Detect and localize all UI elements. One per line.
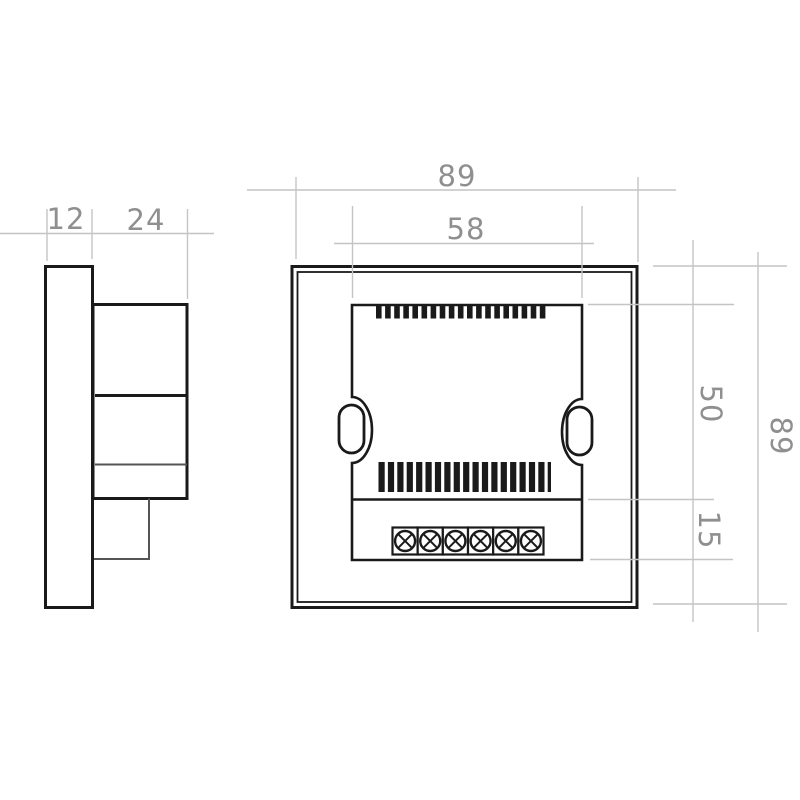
terminal-block [393, 528, 544, 555]
terminal-screw-icon [496, 531, 516, 551]
dimension-label-body-depth: 24 [127, 203, 166, 237]
dimension-label-panel-width: 58 [447, 212, 486, 246]
mounting-panel-outline [352, 305, 582, 560]
side-front-plate-outline [46, 267, 93, 608]
terminal-screw-icon [521, 531, 541, 551]
left-mounting-slot [339, 405, 364, 453]
side-body-outline [93, 305, 187, 499]
terminal-screw-icon [420, 531, 440, 551]
terminal-screw-icon [471, 531, 491, 551]
side-view [46, 267, 188, 608]
dimension-label-front-thickness: 12 [47, 202, 86, 236]
terminal-screw-icon [395, 531, 415, 551]
side-terminal-protrusion-outline [94, 499, 149, 560]
terminal-screw-icon [445, 531, 465, 551]
technical-drawing-canvas: 12 24 89 58 50 15 89 [0, 0, 800, 800]
right-mounting-slot [567, 407, 592, 455]
dimension-label-overall-height: 89 [764, 417, 798, 456]
mounting-panel [339, 305, 592, 560]
side-width-dimensions: 12 24 [0, 202, 214, 299]
back-view [292, 267, 637, 608]
dimension-drawing: 12 24 89 58 50 15 89 [0, 0, 800, 800]
dimension-label-upper-height: 50 [694, 385, 728, 424]
dimension-label-overall-width: 89 [438, 159, 477, 193]
dimension-label-terminal-height: 15 [692, 511, 726, 550]
